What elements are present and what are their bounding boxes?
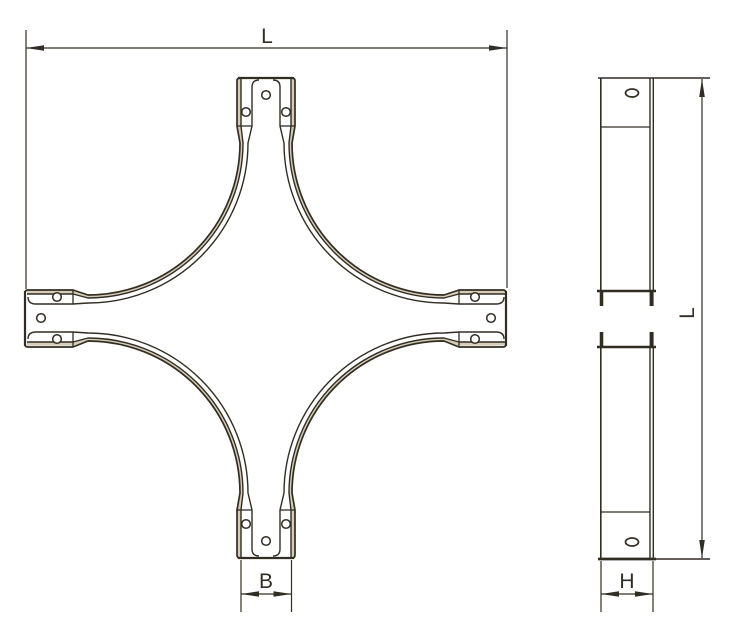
dimension-h-bottom: H (601, 561, 653, 612)
cross-fitting-drawing: L B L H (0, 0, 736, 629)
side-slot-top (626, 89, 639, 97)
arrowhead-bottom (699, 540, 705, 558)
dim-label-side-length: L (676, 307, 699, 319)
arrowhead-top (699, 79, 705, 97)
arrowhead-left (26, 45, 44, 51)
dimension-b-bottom: B (241, 560, 292, 612)
arrowhead-left (241, 591, 259, 597)
cross-body-outline-fill (25, 78, 506, 558)
dimension-l-side: L (676, 79, 705, 558)
arrowhead-right (274, 591, 292, 597)
side-joint-lines (601, 127, 650, 512)
arrowhead-right (489, 45, 507, 51)
technical-drawing-canvas: L B L H (0, 0, 736, 629)
side-slot-bottom (626, 538, 639, 546)
plan-view (25, 78, 506, 558)
dim-label-branch-width: B (259, 570, 273, 593)
arrowhead-left (601, 591, 619, 597)
dim-label-height: H (619, 570, 634, 593)
arrowhead-right (635, 591, 653, 597)
dim-label-plan-length: L (261, 25, 273, 48)
